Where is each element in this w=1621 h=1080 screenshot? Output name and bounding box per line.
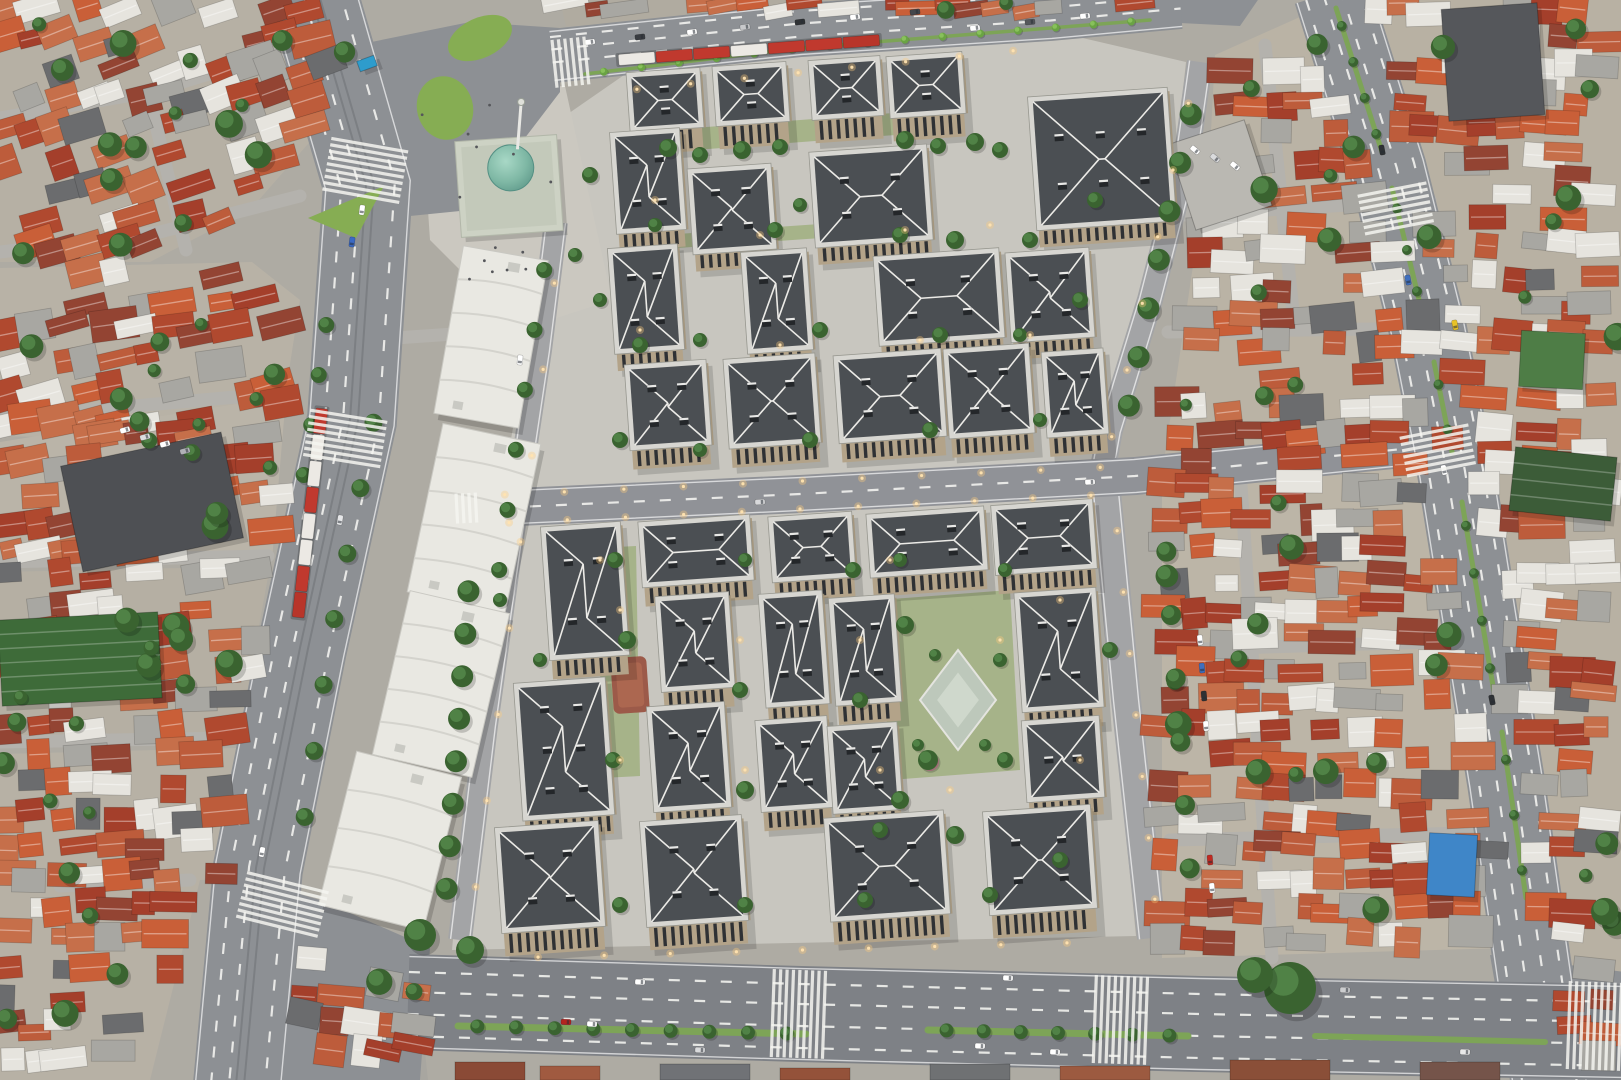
pedestrian [549,181,552,184]
city-house [99,255,129,286]
city-house [1352,362,1384,385]
city-house [1525,269,1554,291]
car [970,25,981,31]
city-house [1459,385,1507,411]
city-house [1394,926,1421,958]
city-house [1166,425,1193,451]
city-house [1151,838,1178,871]
city-house [1468,472,1500,495]
city-house [1443,265,1467,282]
car [1050,1049,1060,1055]
city-house [1423,679,1450,710]
city-house [1339,662,1366,679]
city-house [68,952,111,982]
city-house [94,923,125,952]
apartment-block [983,804,1106,945]
city-house [0,955,23,980]
apartment-block [833,348,955,469]
car [1201,691,1207,701]
city-house [1260,308,1295,330]
city-house [1308,630,1356,654]
city-house [1034,0,1062,15]
pedestrian [467,133,470,136]
city-house [1374,718,1403,748]
city-house [1300,66,1324,93]
city-house [1232,901,1262,925]
apartment-block [1027,87,1184,254]
city-house [1333,687,1380,710]
pedestrian [506,269,509,272]
car [349,237,356,248]
car [1340,987,1350,993]
city-house [1197,802,1245,822]
city-house [1545,598,1582,621]
city-house [91,744,131,774]
city-house [1578,807,1621,833]
city-house [1309,301,1357,334]
car [1080,13,1091,19]
apartment-block [624,359,720,476]
city-house [44,767,72,797]
city-house [92,773,131,795]
city-house [1394,93,1427,112]
city-house [1259,234,1306,264]
city-house [1516,626,1557,650]
apartment-block [991,498,1105,600]
car [1207,855,1213,865]
city-house [15,797,45,822]
car [635,979,645,985]
city-house [1581,266,1618,287]
city-house [0,984,15,1011]
city-house [1361,628,1401,650]
city-house [1193,277,1220,298]
city-house [1172,306,1217,331]
city-house [1577,590,1611,622]
apartment-block [1041,348,1117,463]
pedestrian [421,113,424,116]
apartment-block [828,593,909,731]
car [585,39,596,46]
apartment-block [494,820,613,962]
car [359,205,366,216]
city-house [1313,857,1345,889]
pedestrian [488,104,491,107]
city-house [1359,534,1406,556]
car [755,499,765,505]
pedestrian [524,268,527,271]
apartment-block [824,810,959,951]
city-house [1469,205,1506,230]
city-house [149,891,197,912]
city-house [241,626,270,655]
car [635,34,646,41]
apartment-block [809,144,941,271]
city-house [1316,418,1347,448]
pedestrian [475,146,478,149]
city-house [157,955,183,983]
car [1203,721,1209,731]
city-house [1207,58,1254,84]
city-house [1375,307,1403,332]
car [1003,975,1013,981]
city-house [1376,694,1403,711]
city-house [1277,445,1322,471]
city-house [142,919,189,948]
city-house [1183,327,1220,351]
apartment-block [540,521,637,686]
city-house [200,794,249,828]
city-house [1448,915,1493,948]
city-house [1203,930,1235,956]
city-house [1,1047,25,1071]
city-house [1261,119,1292,144]
apartment-block [943,343,1043,464]
city-house [313,1032,347,1067]
city-house [259,483,295,506]
city-house [247,515,295,546]
apartment-block [639,814,756,956]
city-house [1207,710,1237,740]
city-house [1567,291,1611,315]
pedestrian [483,259,486,262]
green-arc-hall [1508,447,1621,527]
city-house [91,1040,135,1061]
city-house [1180,597,1207,630]
apartment-block [655,591,743,717]
city-house [1259,570,1292,591]
car [1460,1049,1470,1055]
city-house [1262,57,1304,85]
city-house [260,384,304,421]
city-house [296,946,327,971]
city-house [1359,479,1403,508]
city-house [1575,54,1619,78]
city-house [1285,599,1318,627]
city-house [1560,769,1588,797]
city-house [0,917,32,943]
city-house [1445,305,1481,324]
city-house [1180,925,1206,951]
car [910,9,921,16]
city-house [1391,842,1427,863]
city-house [1521,842,1551,863]
city-house [180,827,213,852]
city-house [1178,775,1211,798]
city-house [1231,509,1271,528]
city-house [1474,233,1498,259]
city-house [1262,327,1289,350]
city-house [1276,470,1322,493]
city-house [205,863,237,884]
city-house [1585,382,1616,406]
pedestrian [512,153,515,156]
city-house [1310,719,1339,740]
pedestrian [468,278,471,281]
apartment-block [607,243,692,377]
city-house [1370,420,1409,443]
city-house [1215,575,1238,592]
city-house [1569,539,1615,564]
city-house [21,482,59,509]
city-house [1551,921,1585,943]
dark-long-roof [1441,3,1549,127]
city-house [1399,802,1427,833]
pedestrian [521,251,524,254]
car [1025,19,1036,25]
city-house [1584,717,1608,738]
city-house [1406,299,1440,332]
pedestrian [458,196,461,199]
city-house [1514,719,1559,744]
city-house [47,557,73,587]
pedestrian [491,270,494,273]
city-house [1406,746,1429,768]
city-house [11,868,45,893]
car [695,1047,705,1053]
city-house [1454,713,1487,744]
car [740,24,751,31]
car [687,29,698,36]
city-house [1420,558,1457,584]
city-house [1439,358,1486,385]
city-house [1446,808,1489,829]
city-house [1572,956,1615,983]
city-house [1464,145,1509,171]
city-house [160,775,186,803]
city-house [1323,330,1346,355]
city-house [1360,267,1405,297]
city-house [1189,533,1216,559]
car [517,355,523,365]
blue-tarp-roof [1426,833,1481,903]
city-house [1260,719,1291,742]
city-house [317,984,365,1009]
city-house [1340,442,1388,468]
city-house [1575,563,1621,584]
car [975,1043,985,1049]
car [1085,479,1095,485]
city-house [1426,592,1462,611]
city-house [1360,592,1404,612]
car [561,1019,571,1025]
city-house [1315,567,1339,599]
car [795,19,806,26]
city-house [1278,664,1323,683]
city-house [1336,509,1378,528]
city-house [1401,330,1443,355]
pedestrian [494,246,497,249]
city-house [1366,560,1407,586]
city-house [1516,422,1557,442]
city-house [0,562,22,584]
car [850,14,861,21]
city-house [102,1012,143,1034]
apartment-block [866,506,996,603]
city-house [1545,110,1580,136]
city-house [1493,184,1532,204]
city-house [1421,770,1459,799]
car [1197,635,1203,645]
city-house [1520,773,1558,796]
car [1199,663,1205,673]
apartment-block [758,589,838,733]
apartment-block [723,352,829,474]
car [587,1021,597,1027]
city-house [1280,831,1316,856]
city-house [210,690,252,707]
apartment-block [610,127,695,257]
city-house [1451,742,1496,770]
aerial-photo-stage [0,0,1621,1080]
city-house [27,738,51,770]
city-house [179,740,224,770]
city-house [195,346,246,384]
city-house [1575,231,1620,258]
city-house [17,832,43,858]
city-house [1201,870,1243,889]
aerial-render-canvas [0,0,1621,1080]
city-house [1471,260,1497,289]
apartment-block [886,51,974,147]
city-house [1544,142,1583,162]
car [1209,883,1215,893]
city-house [1370,654,1414,687]
city-house [1397,482,1427,503]
city-house [1286,933,1326,951]
city-house [50,808,75,832]
city-house [1213,539,1242,558]
apartment-block [1014,587,1112,738]
city-house [1518,690,1556,714]
green-building [1518,330,1589,394]
